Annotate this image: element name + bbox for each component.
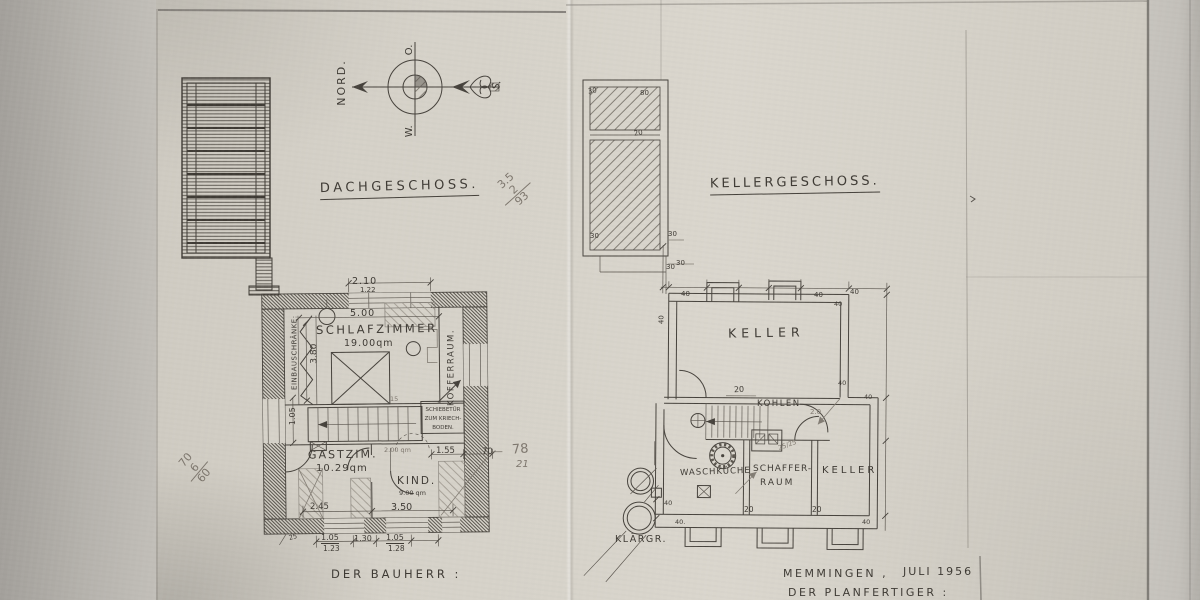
attic-dim-200qm: 2.00 qm (384, 447, 411, 454)
room-label-keller-main: KELLER (728, 325, 805, 339)
chimney-dim-30b: 30 (590, 233, 599, 240)
chimney-dim-20: 20 (633, 129, 643, 138)
attic-dim-500: 5.00 (350, 309, 375, 319)
attic-dim-350: 3.50 (391, 503, 412, 513)
chimney-dim-80: 80 (640, 90, 649, 97)
room-label-einbauschraenke: EINBAUSCHRÄNKE: (291, 301, 298, 405)
room-label-gastzimmer: GASTZIM. (308, 448, 378, 461)
attic-dim-245: 2.45 (310, 503, 329, 512)
cellar-dim-20-bottom-a: 20 (744, 506, 754, 514)
room-label-keller-small: KELLER (822, 466, 877, 477)
cellar-dim-30: 30 (666, 264, 675, 271)
attic-dim-123: 1.23 (323, 545, 340, 553)
room-label-schafferraum-line1: SCHAFFER- (753, 465, 812, 474)
footer-planfertiger-label: DER PLANFERTIGER : (788, 587, 949, 599)
cellar-dim-40-top-a: 40 (681, 291, 690, 298)
room-area-gastzimmer: 10.29qm (316, 464, 368, 475)
attic-dim-128: 1.28 (388, 545, 405, 553)
note-schiebetuer-line1: SCHIEBETÜR (423, 406, 463, 415)
cellar-dim-40-right-b: 40 (838, 380, 846, 387)
chimney-dim-30d: 30 (676, 260, 685, 267)
attic-dim-122: 1.22 (360, 287, 376, 294)
footer-bauherr-label: DER BAUHERR : (331, 568, 461, 580)
attic-dim-130: 1.30 (354, 535, 372, 543)
room-label-schlafzimmer: SCHLAFZIMMER (316, 322, 438, 336)
compass-north-label: NORD. (336, 46, 348, 106)
cellar-dim-40-bottom-b: 40. (675, 519, 685, 526)
attic-dim-15: 15 (390, 396, 398, 403)
cellar-dim-40-top-b: 40 (814, 292, 823, 299)
cellar-dim-40-bottom-a: 40 (664, 500, 672, 507)
attic-dim-105b: 1.05 (386, 534, 404, 544)
compass-west-label: W. (405, 117, 416, 137)
cellar-title: KELLERGESCHOSS. (710, 175, 880, 196)
note-schiebetuer-line2: ZUM KRIECH- (423, 415, 463, 424)
cellar-dim-40-right-c: 40 (864, 394, 872, 401)
chimney-dim-30a: 30 (588, 87, 598, 96)
room-label-kofferraum: KOFFERRAUM. (448, 318, 457, 416)
note-schiebetuer: SCHIEBETÜR ZUM KRIECH- BODEN. (423, 406, 463, 432)
plan-linework: .ink{stroke:#46423c;stroke-width:1;fill:… (0, 0, 1200, 600)
attic-dim-105a: 1.05 (321, 534, 339, 544)
compass-east-label: O. (405, 35, 416, 55)
cellar-dim-40-top-c: 40 (850, 289, 859, 296)
cellar-dim-20-bottom-b: 20 (812, 506, 822, 514)
pencil-note-21: 21 (516, 460, 529, 471)
cellar-dim-40-right-a: 40 (834, 301, 842, 308)
room-area-schlafzimmer: 19.00qm (344, 339, 393, 349)
room-label-kind: KIND. (397, 476, 436, 487)
attic-dim-70: 70 (482, 448, 493, 457)
room-label-klaergrube: KLÄRGR. (615, 535, 667, 545)
cellar-dim-20-center: 20 (734, 386, 745, 395)
attic-dim-380: 3.80 (310, 336, 319, 372)
room-label-schafferraum-line2: RAUM (760, 479, 794, 488)
scanned-floor-plan-photo: .ink{stroke:#46423c;stroke-width:1;fill:… (0, 0, 1200, 600)
attic-dim-105-vertical: 1.05 (289, 399, 297, 433)
footer-city-label: MEMMINGEN , (783, 568, 888, 580)
pencil-note-78: 78 (512, 442, 529, 457)
attic-dim-155: 1.55 (436, 447, 455, 456)
room-area-kind: 9.00 qm (399, 490, 426, 497)
cellar-dim-40-bottom-c: 40 (862, 519, 870, 526)
compass-rose (352, 42, 500, 136)
cellar-dim-40-left: 40 (658, 310, 665, 330)
note-schiebetuer-line3: BODEN. (423, 424, 463, 433)
roof-section-hatched (182, 78, 279, 295)
cellar-dim-20-pencil: 2.0 (810, 409, 821, 416)
cellar-floor-plan (584, 243, 890, 584)
chimney-dim-30c: 30 (668, 231, 677, 238)
room-label-kohlen: KOHLEN (757, 400, 801, 409)
footer-date-label: JULI 1956 (903, 566, 973, 578)
